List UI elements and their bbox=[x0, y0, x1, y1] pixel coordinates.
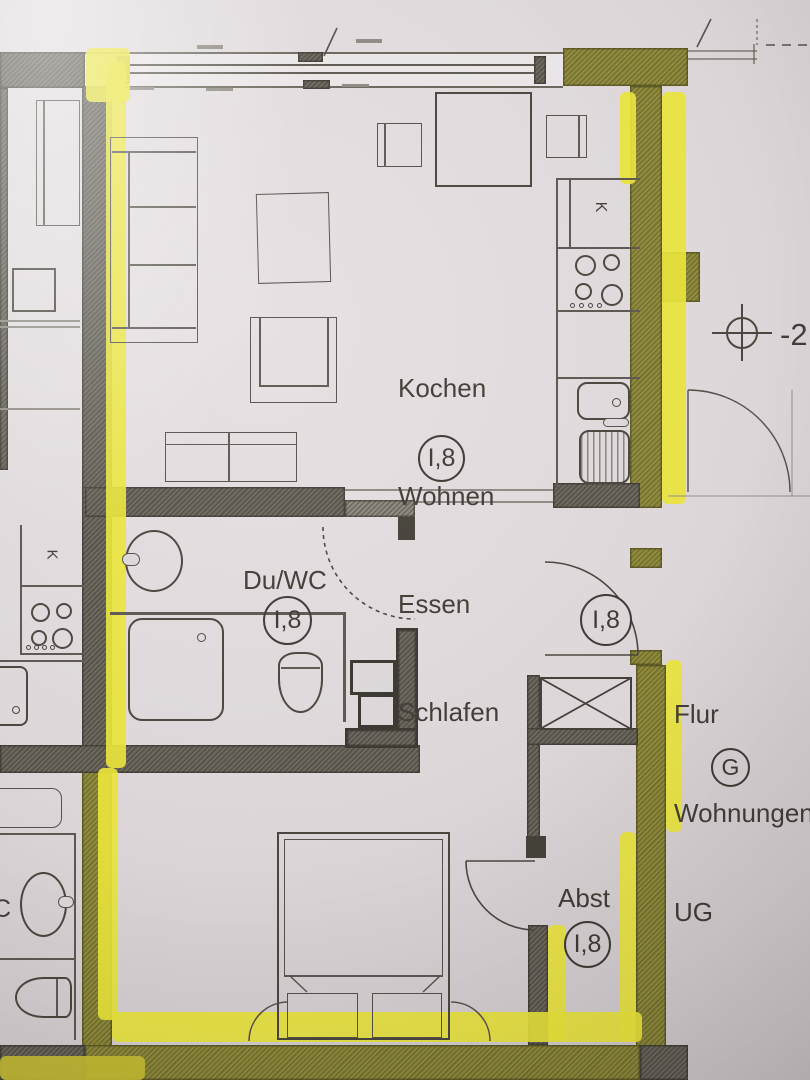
window-sill-tick bbox=[342, 84, 369, 87]
window-sill-tick bbox=[356, 39, 382, 43]
corridor-label-line: Flur bbox=[674, 698, 810, 731]
corridor-tag: G bbox=[711, 748, 750, 787]
sofa-line bbox=[112, 151, 196, 153]
main-room-label-line: Schlafen bbox=[398, 694, 499, 730]
highlight-inner-fringe-top bbox=[620, 92, 636, 184]
neighbor-toilet bbox=[15, 977, 72, 1018]
burner bbox=[575, 283, 592, 300]
neighbor-kitchen-line bbox=[0, 660, 84, 662]
dining-chair-right-line bbox=[578, 115, 580, 158]
top-wall-highlighted bbox=[563, 48, 688, 86]
neighbor-bath-line bbox=[0, 833, 76, 835]
toilet bbox=[278, 652, 323, 713]
neighbor-bath-line bbox=[74, 835, 76, 1040]
neighbor-wardrobe-line bbox=[43, 100, 45, 226]
corridor-label: Flur Wohnungen UG bbox=[674, 632, 810, 995]
kitchen-end-wall bbox=[553, 483, 640, 508]
fridge-label-right: K bbox=[591, 191, 609, 223]
kitchen-line bbox=[556, 178, 558, 488]
armchair-line bbox=[327, 317, 329, 387]
neighbor-knob bbox=[34, 645, 39, 650]
bottom-wall-right bbox=[640, 1045, 688, 1080]
highlight-left-strip-lower bbox=[98, 768, 118, 1020]
neighbor-kitchen-line bbox=[20, 653, 84, 655]
neighbor-knob bbox=[50, 645, 55, 650]
window-glass-line bbox=[130, 64, 536, 66]
sofa-cushion-line bbox=[128, 264, 196, 266]
neighbor-sink bbox=[0, 666, 28, 726]
sideboard-divider bbox=[228, 432, 230, 482]
highlight-right-fringe-in bbox=[620, 832, 636, 1042]
corridor-label-line: Wohnungen bbox=[674, 797, 810, 830]
neighbor-bath-line bbox=[0, 958, 76, 960]
neighbor-burner bbox=[52, 628, 73, 649]
window-mullion bbox=[298, 52, 323, 62]
burner-knob bbox=[570, 303, 575, 308]
burner-knob bbox=[597, 303, 602, 308]
neighbor-wc-label: C bbox=[0, 895, 11, 924]
sink-faucet bbox=[603, 418, 629, 427]
bed-pillow bbox=[287, 993, 358, 1038]
shaft-wall-left bbox=[527, 675, 540, 858]
elevation-value: -2, bbox=[780, 317, 810, 353]
axis-tick bbox=[697, 19, 711, 47]
main-room-tag: I,8 bbox=[418, 435, 465, 482]
shower-drain bbox=[197, 633, 206, 642]
neighbor-cabinet bbox=[12, 268, 56, 312]
neighbor-knob bbox=[26, 645, 31, 650]
right-wall-lower bbox=[636, 665, 666, 1048]
sofa-cushion-line bbox=[128, 206, 196, 208]
dining-table bbox=[435, 92, 532, 187]
shower-tray bbox=[128, 618, 224, 721]
neighbor-partition bbox=[0, 320, 80, 322]
washbasin-tap bbox=[122, 553, 140, 566]
burner-knob bbox=[579, 303, 584, 308]
neighbor-burner bbox=[31, 630, 47, 646]
storage-tag: I,8 bbox=[564, 921, 611, 968]
window-sill-tick bbox=[128, 87, 154, 90]
neighbor-tub bbox=[0, 788, 62, 828]
highlight-right-fringe-upper bbox=[662, 92, 686, 504]
bath-tag: I,8 bbox=[263, 596, 312, 645]
toilet-seat-line bbox=[281, 667, 320, 669]
floor-plan-photo: Kochen Wohnen Essen Schlafen I,8 Du/WC I… bbox=[0, 0, 810, 1080]
hall-door-arc bbox=[688, 390, 790, 492]
neighbor-knob bbox=[42, 645, 47, 650]
sink-drain bbox=[612, 398, 621, 407]
sideboard bbox=[165, 432, 297, 482]
bed-inner-line bbox=[284, 839, 443, 975]
entrance-tag: I,8 bbox=[580, 594, 632, 646]
sofa bbox=[110, 137, 198, 343]
sofa-line bbox=[128, 151, 130, 328]
main-room-label-line: Essen bbox=[398, 586, 499, 622]
storage-door-arc bbox=[466, 861, 535, 930]
main-room-label: Kochen Wohnen Essen Schlafen bbox=[398, 298, 499, 802]
neighbor-burner bbox=[56, 603, 72, 619]
main-room-label-line: Wohnen bbox=[398, 478, 499, 514]
top-wall-left bbox=[0, 52, 85, 88]
kitchen-line bbox=[556, 310, 640, 312]
neighbor-kitchen-line bbox=[20, 525, 22, 655]
burner bbox=[601, 284, 623, 306]
window-sill-tick bbox=[206, 88, 233, 91]
neighbor-toilet-tank-line bbox=[56, 979, 58, 1016]
kitchen-line bbox=[556, 247, 640, 249]
highlight-bottomleft-blob bbox=[0, 1056, 145, 1080]
entrance-jamb-top bbox=[630, 548, 662, 568]
shaft-wall-bottom bbox=[527, 728, 638, 745]
wall-face-lines bbox=[688, 51, 757, 59]
duct-step bbox=[350, 660, 396, 695]
armchair-line bbox=[259, 317, 261, 387]
window-glass-line bbox=[130, 72, 536, 74]
neighbor-sink-drain bbox=[12, 706, 20, 714]
neighbor-partition bbox=[0, 408, 80, 410]
sideboard-shelf-line bbox=[165, 444, 297, 445]
shower-screen bbox=[343, 612, 346, 722]
burner bbox=[603, 254, 620, 271]
coffee-table bbox=[256, 192, 331, 284]
neighbor-kitchen-line bbox=[20, 585, 84, 587]
neighbor-burner bbox=[31, 603, 50, 622]
shaft-box bbox=[540, 677, 632, 730]
armchair-line bbox=[259, 385, 328, 387]
window-jamb bbox=[534, 56, 546, 84]
sink-drainer bbox=[579, 430, 630, 484]
dining-chair-left-line bbox=[384, 123, 386, 167]
duct-step bbox=[358, 694, 396, 728]
fridge-inner-line bbox=[569, 180, 571, 247]
dining-chair-right bbox=[546, 115, 587, 158]
sofa-line bbox=[112, 327, 196, 329]
bottom-wall-highlighted bbox=[85, 1045, 640, 1080]
neighbor-partition bbox=[0, 326, 80, 328]
neighbor-basin-tap bbox=[58, 896, 74, 908]
storage-label: Abst bbox=[558, 883, 610, 914]
sink-bowl bbox=[577, 382, 630, 420]
corridor-label-line: UG bbox=[674, 896, 810, 929]
entrance-jamb-bottom bbox=[630, 650, 662, 665]
storage-door-jamb bbox=[526, 836, 546, 858]
kitchen-line bbox=[556, 377, 640, 379]
armchair bbox=[250, 317, 337, 403]
bed-pillow bbox=[372, 993, 442, 1038]
main-room-label-line: Kochen bbox=[398, 370, 499, 406]
left-edge-wall bbox=[0, 88, 8, 470]
bed-blanket-line bbox=[284, 975, 443, 977]
elevation-marker-cross bbox=[741, 304, 743, 361]
fridge-label-left: K bbox=[44, 539, 61, 571]
bath-label: Du/WC bbox=[243, 565, 327, 596]
window-mullion bbox=[303, 80, 330, 89]
bath-bedroom-wall bbox=[0, 745, 420, 773]
burner bbox=[575, 255, 596, 276]
burner-knob bbox=[588, 303, 593, 308]
window-sill-tick bbox=[197, 45, 223, 49]
